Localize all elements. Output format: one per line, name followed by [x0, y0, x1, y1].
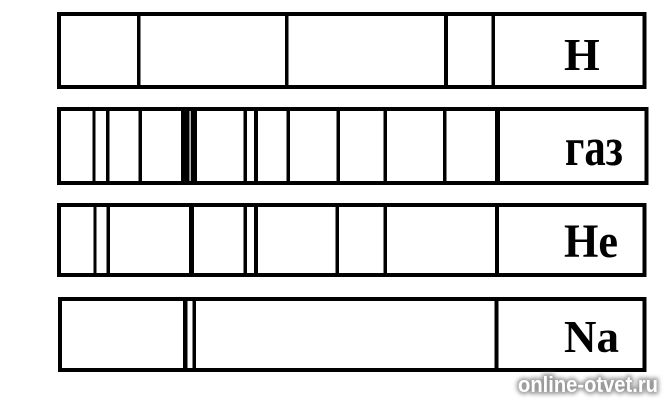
svg-text:He: He [564, 215, 618, 268]
svg-text:H: H [564, 29, 600, 80]
svg-text:Na: Na [564, 311, 619, 362]
svg-text:газ: газ [565, 117, 623, 177]
svg-text:online-otvet.ru: online-otvet.ru [518, 372, 658, 397]
